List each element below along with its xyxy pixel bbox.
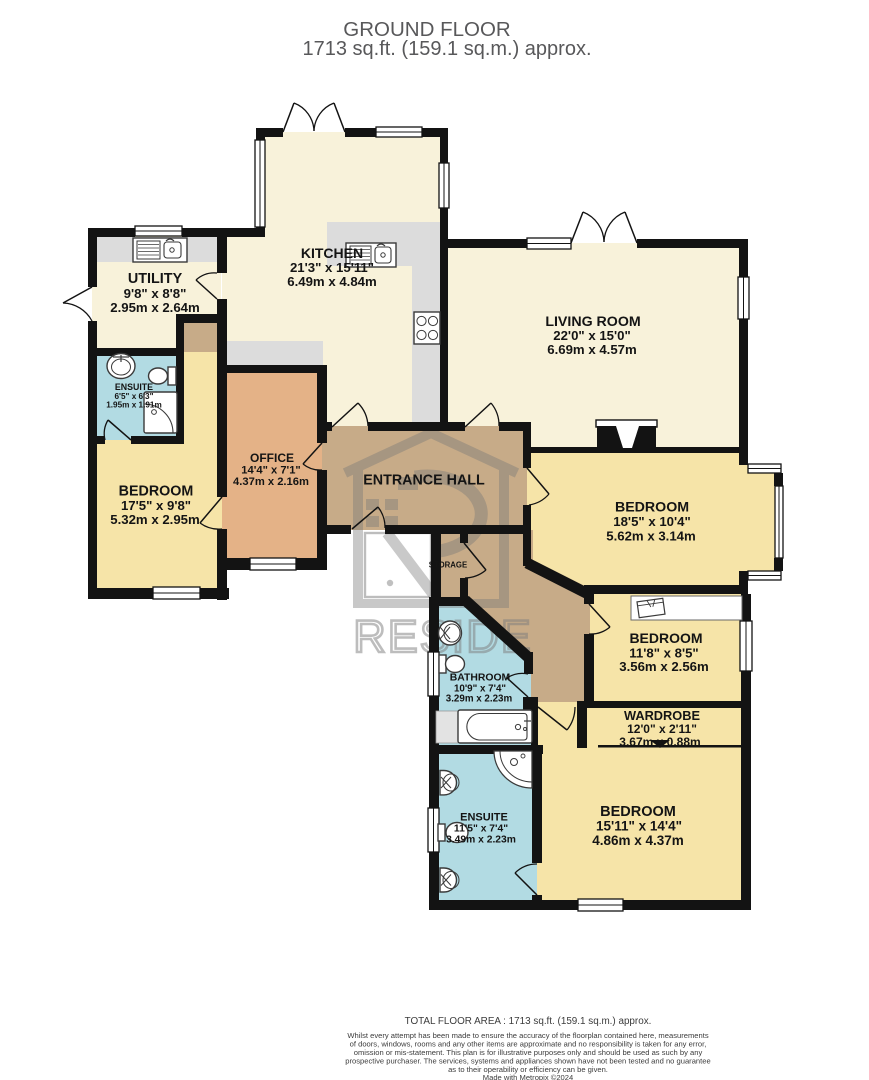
svg-text:KITCHEN: KITCHEN [301,245,363,261]
svg-text:ENSUITE: ENSUITE [115,382,153,392]
svg-text:WARDROBE: WARDROBE [624,708,701,723]
svg-text:11'5" x 7'4": 11'5" x 7'4" [454,824,508,835]
svg-text:18'5" x 10'4": 18'5" x 10'4" [613,514,690,529]
svg-text:BATHROOM: BATHROOM [450,673,510,684]
svg-text:ENTRANCE HALL: ENTRANCE HALL [363,473,485,489]
svg-text:3.29m x 2.23m: 3.29m x 2.23m [446,694,513,705]
svg-text:4.86m x 4.37m: 4.86m x 4.37m [592,833,684,848]
svg-text:9'8" x 8'8": 9'8" x 8'8" [124,286,187,301]
svg-text:2.95m x 2.64m: 2.95m x 2.64m [110,300,199,315]
svg-text:22'0" x 15'0": 22'0" x 15'0" [553,328,630,343]
svg-text:3.49m x 2.23m: 3.49m x 2.23m [446,835,516,846]
svg-text:15'11" x 14'4": 15'11" x 14'4" [596,819,682,834]
svg-text:12'0" x 2'11": 12'0" x 2'11" [627,722,697,736]
svg-text:5.32m x 2.95m: 5.32m x 2.95m [110,512,199,527]
svg-text:17'5" x 9'8": 17'5" x 9'8" [121,498,191,513]
svg-text:6.69m x 4.57m: 6.69m x 4.57m [547,342,636,357]
svg-text:Made with Metropix ©2024: Made with Metropix ©2024 [483,1073,573,1080]
svg-text:UTILITY: UTILITY [128,271,183,287]
svg-text:OFFICE: OFFICE [250,451,294,465]
svg-text:1.95m x 1.91m: 1.95m x 1.91m [106,401,162,410]
svg-text:TOTAL FLOOR AREA : 1713 sq.ft.: TOTAL FLOOR AREA : 1713 sq.ft. (159.1 sq… [405,1016,652,1027]
svg-text:5.62m x 3.14m: 5.62m x 3.14m [606,529,695,544]
svg-text:3.56m x 2.56m: 3.56m x 2.56m [619,659,708,674]
svg-text:1713 sq.ft. (159.1 sq.m.) appr: 1713 sq.ft. (159.1 sq.m.) approx. [302,38,591,60]
svg-text:4.37m x 2.16m: 4.37m x 2.16m [233,476,309,488]
svg-text:STORAGE: STORAGE [429,561,467,570]
svg-text:3.67m x 0.88m: 3.67m x 0.88m [619,735,700,749]
svg-text:14'4" x 7'1": 14'4" x 7'1" [241,465,300,477]
svg-text:6.49m x 4.84m: 6.49m x 4.84m [287,274,376,289]
svg-text:BEDROOM: BEDROOM [629,630,702,646]
svg-text:ENSUITE: ENSUITE [460,812,508,824]
svg-text:21'3" x 15'11": 21'3" x 15'11" [290,260,374,275]
